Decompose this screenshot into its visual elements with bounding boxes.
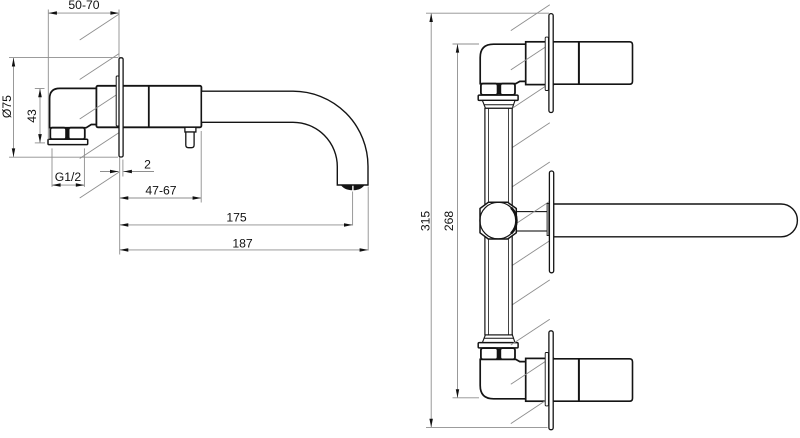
svg-text:50-70: 50-70 xyxy=(68,0,99,12)
svg-text:43: 43 xyxy=(25,109,39,123)
svg-text:2: 2 xyxy=(144,157,151,171)
svg-text:47-67: 47-67 xyxy=(145,183,176,197)
svg-text:G1/2: G1/2 xyxy=(55,170,82,184)
svg-text:268: 268 xyxy=(442,211,456,232)
svg-text:Ø75: Ø75 xyxy=(0,95,14,118)
svg-text:315: 315 xyxy=(418,211,432,232)
svg-text:175: 175 xyxy=(226,211,247,225)
svg-text:187: 187 xyxy=(232,236,253,250)
